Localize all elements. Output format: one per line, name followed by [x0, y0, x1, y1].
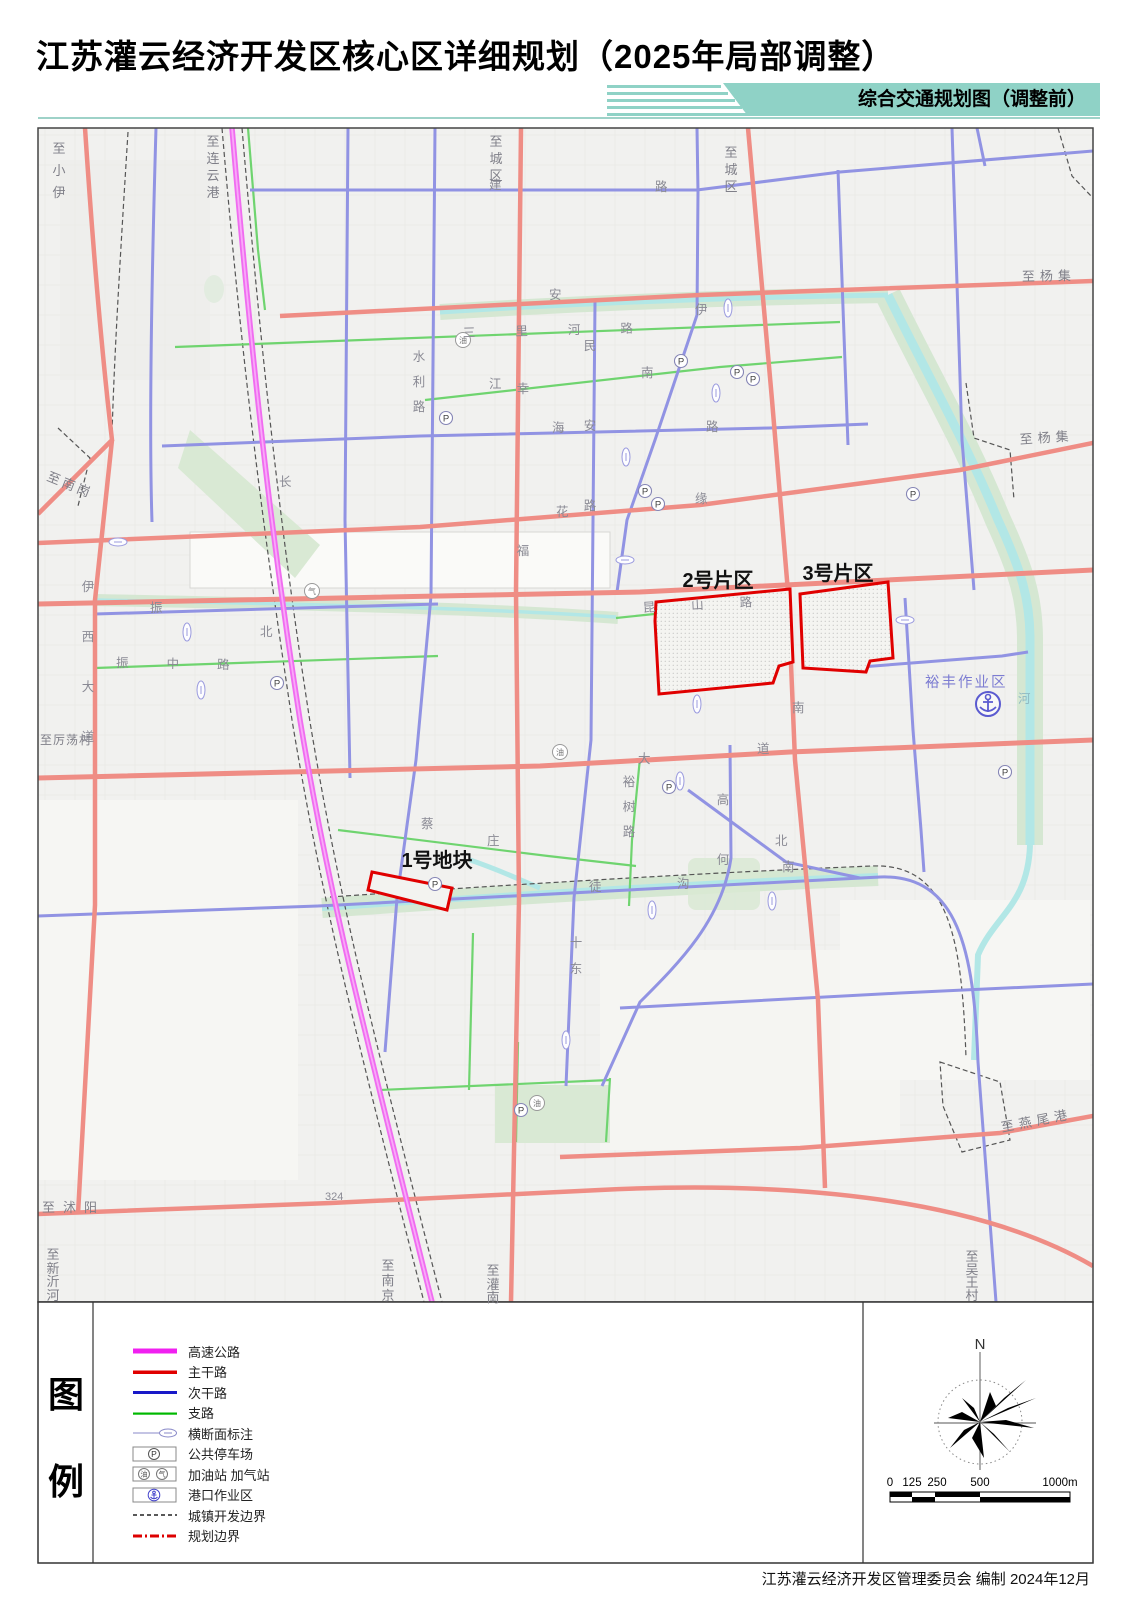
legend-label: 主干路 — [188, 1362, 227, 1381]
parking-icon: P — [151, 1449, 157, 1459]
road-label: 长 — [279, 475, 292, 489]
legend-row-secondary: 次干路 — [132, 1385, 270, 1399]
parking-icon: P — [655, 499, 661, 510]
oil-station-icon: 油 — [556, 747, 564, 757]
zone2-label: 2号片区 — [682, 569, 753, 592]
edge-label: 至沭阳 — [42, 1200, 105, 1215]
legend-row-highway: 高速公路 — [132, 1344, 270, 1358]
road-label: 振 — [150, 601, 163, 615]
planning-boundary-swatch — [132, 1528, 178, 1544]
port-swatch — [132, 1487, 178, 1503]
secondary-swatch — [132, 1384, 178, 1400]
road-label: 路 — [706, 419, 719, 434]
road-label: 道 — [757, 742, 770, 756]
legend-label: 加油站 加气站 — [188, 1465, 270, 1484]
legend-row-cross-section: 横断面标注 — [132, 1426, 270, 1440]
scale-tick: 1000m — [1042, 1477, 1077, 1489]
legend-row-town-boundary: 城镇开发边界 — [132, 1508, 270, 1522]
road-label-vertical: 伊西大道 — [81, 562, 95, 762]
town-boundary-swatch — [132, 1507, 178, 1523]
edge-label-vertical: 至吴王村 — [965, 1250, 979, 1302]
legend-row-planning-boundary: 规划边界 — [132, 1529, 270, 1543]
parking-icon: P — [443, 413, 449, 424]
road-label: 北 — [775, 834, 788, 848]
legend-row-port: 港口作业区 — [132, 1488, 270, 1502]
parking-icon: P — [1002, 767, 1008, 778]
highway-swatch — [132, 1343, 178, 1359]
road-label: 沟 — [677, 877, 690, 891]
port-area-label: 裕丰作业区 — [925, 674, 1008, 691]
road-label: 蔡 — [421, 817, 434, 831]
legend-label: 港口作业区 — [188, 1485, 253, 1504]
parking-icon: P — [642, 486, 648, 497]
edge-label-vertical: 至小伊 — [52, 138, 66, 204]
branch-swatch — [132, 1405, 178, 1421]
edge-label: 至杨集 — [1022, 268, 1076, 284]
road-label: 北 — [260, 625, 273, 639]
credit-line: 江苏灌云经济开发区管理委员会 编制 2024年12月 — [38, 1568, 1090, 1589]
legend-label: 规划边界 — [188, 1526, 240, 1545]
road-label-vertical: 十东 — [569, 930, 583, 982]
legend-list: 高速公路 主干路 次干路 支路 横断面标注 P 公共停车场 油气 加油站 加气站 — [132, 1344, 270, 1543]
gas-station-icon: 气 — [308, 586, 316, 596]
legend-title-char: 例 — [47, 1453, 85, 1505]
legend-label: 城镇开发边界 — [188, 1506, 266, 1525]
route-number-label: 324 — [325, 1191, 343, 1203]
edge-label-vertical: 至城区 — [724, 144, 738, 195]
legend-label: 支路 — [188, 1403, 214, 1422]
road-label-vertical: 幸福 — [516, 308, 530, 632]
legend-row-parking: P 公共停车场 — [132, 1447, 270, 1461]
legend-title-char: 图 — [47, 1366, 85, 1418]
road-label: 缘 — [695, 492, 708, 506]
zone3-boundary — [800, 582, 893, 672]
parking-icon: P — [678, 356, 684, 367]
legend-row-gas: 油气 加油站 加气站 — [132, 1467, 270, 1481]
zone3-label: 3号片区 — [802, 562, 873, 585]
edge-label-vertical: 至城区 — [489, 133, 503, 184]
scale-tick: 250 — [927, 1477, 946, 1489]
scale-tick: 0 — [887, 1477, 893, 1489]
parking-icon: P — [432, 879, 438, 890]
plan-sheet: 江苏灌云经济开发区核心区详细规划（2025年局部调整） 综合交通规划图（调整前） — [0, 0, 1131, 1600]
road-label: 振中路 — [116, 655, 268, 673]
oil-station-icon: 油 — [533, 1098, 541, 1108]
parking-icon: P — [274, 678, 280, 689]
parking-icon: P — [734, 367, 740, 378]
map-content: P P P P P P P P P P P P 油 油 油 气 — [38, 128, 1093, 1302]
road-label: 花 — [556, 504, 569, 519]
edge-label-vertical: 至连云港 — [206, 133, 220, 201]
river-label: 河 — [1018, 692, 1031, 706]
road-label: 路 — [655, 179, 668, 194]
edge-label-vertical: 至新沂河 — [46, 1248, 60, 1302]
legend-row-arterial: 主干路 — [132, 1365, 270, 1379]
road-label: 伊 — [695, 303, 708, 317]
legend-label: 横断面标注 — [188, 1424, 253, 1443]
edge-label-vertical: 至灌南 — [486, 1264, 500, 1305]
parking-icon: P — [910, 489, 916, 500]
cross-section-swatch — [132, 1425, 178, 1441]
legend-label: 高速公路 — [188, 1342, 240, 1361]
road-label: 徒 — [589, 880, 602, 894]
road-label: 南 — [782, 859, 795, 874]
legend-label: 次干路 — [188, 1383, 227, 1402]
road-label: 南 — [641, 365, 654, 380]
scale-tick: 125 — [902, 1477, 921, 1489]
plot1-label: 1号地块 — [401, 849, 473, 872]
road-label: 海 — [552, 420, 565, 435]
road-label: 南 — [792, 700, 805, 715]
port-anchor-icon — [976, 692, 1000, 716]
legend-label: 公共停车场 — [188, 1444, 253, 1463]
parking-icon: P — [518, 1105, 524, 1116]
legend-row-branch: 支路 — [132, 1406, 270, 1420]
edge-label-vertical: 至南京 — [381, 1258, 395, 1303]
road-label-vertical: 高何 — [716, 770, 730, 890]
road-label: 安 — [549, 287, 562, 302]
gas-swatch: 油气 — [132, 1466, 178, 1482]
scale-tick: 500 — [970, 1477, 989, 1489]
parking-icon: P — [666, 782, 672, 793]
road-label: 庄 — [487, 833, 500, 848]
north-label: N — [975, 1336, 986, 1353]
road-label: 江 — [489, 377, 502, 391]
gas-station-icon: 气 — [159, 1470, 166, 1479]
parking-icon: P — [750, 374, 756, 385]
road-label: 大 — [638, 752, 651, 766]
arterial-swatch — [132, 1364, 178, 1380]
road-label-vertical: 水利路 — [412, 345, 426, 420]
road-label-vertical: 裕树路 — [622, 770, 636, 845]
road-label-vertical: 民安路 — [583, 306, 597, 546]
parking-swatch: P — [132, 1446, 178, 1462]
oil-station-icon: 油 — [141, 1470, 148, 1479]
